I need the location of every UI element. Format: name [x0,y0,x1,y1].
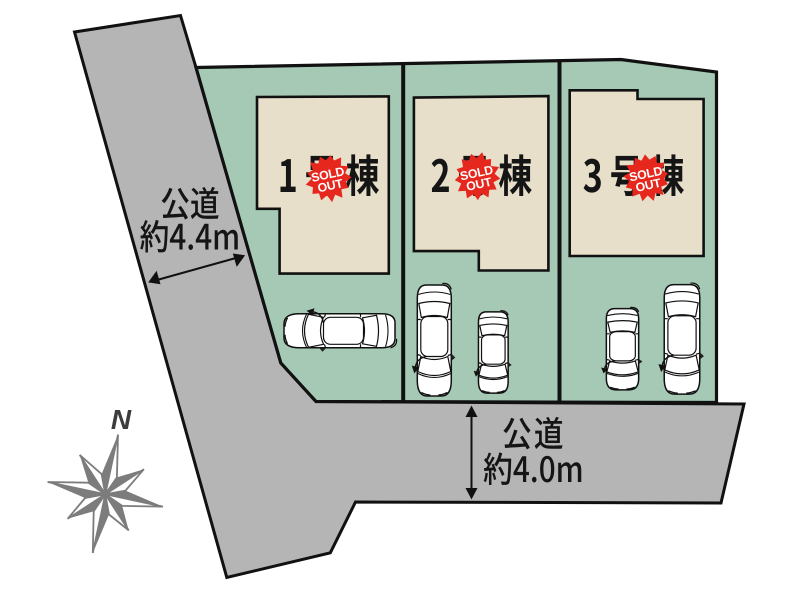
svg-text:N: N [111,404,132,435]
